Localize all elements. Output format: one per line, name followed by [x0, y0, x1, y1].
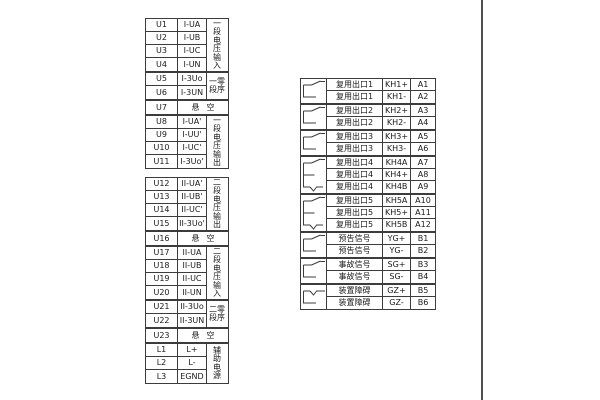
terminal-id-cell: U21 — [146, 301, 178, 313]
table-row: U11I-3Uo' — [146, 155, 207, 168]
group-rows: U12II-UA'U13II-UB'U14II-UC'U15II-3Uo' — [146, 178, 207, 230]
table-row: U1I-UA — [146, 19, 207, 32]
output-name-cell: 复用出口1 — [327, 91, 383, 103]
terminal-code-cell: KH1- — [383, 91, 411, 103]
table-row: 事故信号SG-B4 — [327, 271, 435, 283]
terminal-number-cell: B2 — [411, 245, 435, 257]
contact-group: 事故信号SG+B3事故信号SG-B4 — [300, 258, 436, 284]
terminal-code-cell: YG- — [383, 245, 411, 257]
terminal-id-cell: U13 — [146, 191, 178, 203]
group-rows: 复用出口3KH3+A5复用出口3KH3-A6 — [327, 131, 435, 155]
terminal-id-cell: U14 — [146, 204, 178, 216]
signal-name-cell: EGND — [178, 370, 207, 383]
table-row: U13II-UB' — [146, 191, 207, 204]
terminal-id-cell: U1 — [146, 19, 178, 31]
terminal-number-cell: A11 — [411, 207, 435, 218]
group-label-cell: 一零 段序 — [207, 73, 227, 99]
terminal-group: U5I-3UoU6I-3UN一零 段序 — [145, 72, 229, 100]
signal-output-terminal-table: 复用出口1KH1+A1复用出口1KH1-A2复用出口2KH2+A3复用出口2KH… — [300, 78, 436, 310]
signal-name-cell: I-UU' — [178, 129, 207, 141]
output-name-cell: 复用出口5 — [327, 219, 383, 231]
signal-name-cell: II-UC' — [178, 204, 207, 216]
terminal-number-cell: B3 — [411, 259, 435, 270]
contact-group: 复用出口2KH2+A3复用出口2KH2-A4 — [300, 104, 436, 130]
signal-name-cell: I-3Uo' — [178, 155, 207, 168]
output-name-cell: 事故信号 — [327, 271, 383, 283]
table-row: 复用出口5KH5BA12 — [327, 219, 435, 231]
group-rows: 复用出口2KH2+A3复用出口2KH2-A4 — [327, 105, 435, 129]
output-name-cell: 复用出口3 — [327, 143, 383, 155]
floating-label-cell: 悬空 — [178, 329, 228, 342]
terminal-number-cell: A7 — [411, 157, 435, 168]
terminal-id-cell: U9 — [146, 129, 178, 141]
group-rows: L1L+L2L-L3EGND — [146, 344, 207, 383]
changeover-contact-icon — [301, 195, 327, 231]
terminal-id-cell: U5 — [146, 73, 178, 85]
group-rows: U8I-UA'U9I-UU'U10I-UC'U11I-3Uo' — [146, 116, 207, 168]
output-name-cell: 复用出口3 — [327, 131, 383, 142]
signal-name-cell: II-3Uo — [178, 301, 207, 313]
table-row: 复用出口3KH3+A5 — [327, 131, 435, 143]
terminal-id-cell: L2 — [146, 357, 178, 369]
terminal-id-cell: U23 — [146, 329, 178, 342]
signal-name-cell: I-UN — [178, 58, 207, 71]
group-label-cell: 二 段 电 压 输 出 — [207, 178, 227, 230]
table-row: U23悬空 — [146, 329, 228, 342]
signal-name-cell: II-UA' — [178, 178, 207, 190]
signal-name-cell: II-UB — [178, 260, 207, 272]
terminal-id-cell: U4 — [146, 58, 178, 71]
voltage-terminal-table-2: U12II-UA'U13II-UB'U14II-UC'U15II-3Uo'二 段… — [145, 177, 229, 384]
terminal-id-cell: U2 — [146, 32, 178, 44]
terminal-number-cell: A4 — [411, 117, 435, 129]
terminal-id-cell: U7 — [146, 101, 178, 114]
group-rows: U21II-3UoU22II-3UN — [146, 301, 207, 327]
terminal-code-cell: GZ+ — [383, 285, 411, 296]
table-row: 复用出口3KH3-A6 — [327, 143, 435, 155]
terminal-group: U12II-UA'U13II-UB'U14II-UC'U15II-3Uo'二 段… — [145, 177, 229, 231]
table-row: U18II-UB — [146, 260, 207, 273]
table-row: 装置障碍GZ+B5 — [327, 285, 435, 297]
contact-group: 预告信号YG+B1预告信号YG-B2 — [300, 232, 436, 258]
table-row: 复用出口5KH5AA10 — [327, 195, 435, 207]
terminal-group: U23悬空 — [145, 328, 229, 343]
terminal-id-cell: U22 — [146, 314, 178, 327]
terminal-id-cell: L1 — [146, 344, 178, 356]
terminal-code-cell: KH2- — [383, 117, 411, 129]
signal-name-cell: II-3Uo' — [178, 217, 207, 230]
table-row: L1L+ — [146, 344, 207, 357]
group-label-cell: 二零 段序 — [207, 301, 227, 327]
table-row: 复用出口4KH4AA7 — [327, 157, 435, 169]
table-row: U20II-UN — [146, 286, 207, 299]
terminal-id-cell: U8 — [146, 116, 178, 128]
output-name-cell: 复用出口5 — [327, 195, 383, 206]
output-name-cell: 复用出口4 — [327, 169, 383, 180]
normally-open-contact-icon — [301, 131, 327, 155]
terminal-code-cell: KH3+ — [383, 131, 411, 142]
table-row: U9I-UU' — [146, 129, 207, 142]
terminal-id-cell: U20 — [146, 286, 178, 299]
terminal-number-cell: B6 — [411, 297, 435, 309]
signal-name-cell: II-UN — [178, 286, 207, 299]
group-label-cell: 二 段 电 压 输 入 — [207, 247, 227, 299]
group-rows: 复用出口1KH1+A1复用出口1KH1-A2 — [327, 79, 435, 103]
table-row: U10I-UC' — [146, 142, 207, 155]
signal-name-cell: II-UB' — [178, 191, 207, 203]
signal-name-cell: I-UC — [178, 45, 207, 57]
group-rows: U17II-UAU18II-UBU19II-UCU20II-UN — [146, 247, 207, 299]
terminal-id-cell: U6 — [146, 86, 178, 99]
output-name-cell: 复用出口2 — [327, 105, 383, 116]
signal-name-cell: II-3UN — [178, 314, 207, 327]
group-rows: 事故信号SG+B3事故信号SG-B4 — [327, 259, 435, 283]
table-row: U15II-3Uo' — [146, 217, 207, 230]
table-row: U5I-3Uo — [146, 73, 207, 86]
output-name-cell: 事故信号 — [327, 259, 383, 270]
terminal-number-cell: A1 — [411, 79, 435, 90]
table-row: U19II-UC — [146, 273, 207, 286]
group-rows: U1I-UAU2I-UBU3I-UCU4I-UN — [146, 19, 207, 71]
terminal-number-cell: B4 — [411, 271, 435, 283]
group-rows: 复用出口5KH5AA10复用出口5KH5+A11复用出口5KH5BA12 — [327, 195, 435, 231]
output-name-cell: 复用出口4 — [327, 181, 383, 193]
terminal-id-cell: U18 — [146, 260, 178, 272]
signal-name-cell: II-UC — [178, 273, 207, 285]
table-row: U21II-3Uo — [146, 301, 207, 314]
terminal-number-cell: A12 — [411, 219, 435, 231]
group-label-cell: 辅 助 电 源 — [207, 344, 227, 383]
terminal-group: L1L+L2L-L3EGND辅 助 电 源 — [145, 343, 229, 384]
terminal-number-cell: B1 — [411, 233, 435, 244]
table-row: U6I-3UN — [146, 86, 207, 99]
table-row: 复用出口5KH5+A11 — [327, 207, 435, 219]
voltage-terminal-table-1: U1I-UAU2I-UBU3I-UCU4I-UN一 段 电 压 输 入U5I-3… — [145, 18, 229, 169]
terminal-group: U21II-3UoU22II-3UN二零 段序 — [145, 300, 229, 328]
table-row: 预告信号YG+B1 — [327, 233, 435, 245]
terminal-group: U17II-UAU18II-UBU19II-UCU20II-UN二 段 电 压 … — [145, 246, 229, 300]
signal-name-cell: L+ — [178, 344, 207, 356]
table-row: U2I-UB — [146, 32, 207, 45]
normally-open-contact-icon — [301, 233, 327, 257]
table-row: U14II-UC' — [146, 204, 207, 217]
terminal-number-cell: A10 — [411, 195, 435, 206]
table-row: U8I-UA' — [146, 116, 207, 129]
terminal-id-cell: U15 — [146, 217, 178, 230]
terminal-number-cell: A9 — [411, 181, 435, 193]
terminal-group: U7悬空 — [145, 100, 229, 115]
table-row: L3EGND — [146, 370, 207, 383]
terminal-code-cell: KH1+ — [383, 79, 411, 90]
terminal-code-cell: KH5+ — [383, 207, 411, 218]
normally-closed-contact-icon — [301, 285, 327, 309]
signal-name-cell: I-3Uo — [178, 73, 207, 85]
terminal-id-cell: U17 — [146, 247, 178, 259]
table-row: 复用出口2KH2-A4 — [327, 117, 435, 129]
terminal-id-cell: U10 — [146, 142, 178, 154]
changeover-contact-icon — [301, 157, 327, 193]
group-label-cell: 一 段 电 压 输 入 — [207, 19, 227, 71]
table-row: 装置障碍GZ-B6 — [327, 297, 435, 309]
output-name-cell: 预告信号 — [327, 245, 383, 257]
contact-group: 复用出口4KH4AA7复用出口4KH4+A8复用出口4KH4BA9 — [300, 156, 436, 194]
table-row: U4I-UN — [146, 58, 207, 71]
terminal-code-cell: SG- — [383, 271, 411, 283]
contact-group: 装置障碍GZ+B5装置障碍GZ-B6 — [300, 284, 436, 310]
terminal-number-cell: A5 — [411, 131, 435, 142]
table-row: 复用出口1KH1+A1 — [327, 79, 435, 91]
terminal-id-cell: U11 — [146, 155, 178, 168]
floating-label-cell: 悬空 — [178, 232, 228, 245]
terminal-code-cell: KH4B — [383, 181, 411, 193]
terminal-code-cell: YG+ — [383, 233, 411, 244]
table-row: L2L- — [146, 357, 207, 370]
output-name-cell: 复用出口4 — [327, 157, 383, 168]
signal-name-cell: I-UB — [178, 32, 207, 44]
output-name-cell: 装置障碍 — [327, 297, 383, 309]
table-row: U3I-UC — [146, 45, 207, 58]
terminal-number-cell: A8 — [411, 169, 435, 180]
table-row: 复用出口2KH2+A3 — [327, 105, 435, 117]
terminal-code-cell: KH4+ — [383, 169, 411, 180]
terminal-number-cell: B5 — [411, 285, 435, 296]
signal-name-cell: I-UA' — [178, 116, 207, 128]
normally-open-contact-icon — [301, 79, 327, 103]
signal-name-cell: II-UA — [178, 247, 207, 259]
signal-name-cell: L- — [178, 357, 207, 369]
table-row: U12II-UA' — [146, 178, 207, 191]
page-edge-rule — [481, 0, 483, 400]
table-row: U17II-UA — [146, 247, 207, 260]
group-rows: 预告信号YG+B1预告信号YG-B2 — [327, 233, 435, 257]
terminal-number-cell: A6 — [411, 143, 435, 155]
output-name-cell: 复用出口5 — [327, 207, 383, 218]
group-rows: 复用出口4KH4AA7复用出口4KH4+A8复用出口4KH4BA9 — [327, 157, 435, 193]
terminal-id-cell: L3 — [146, 370, 178, 383]
terminal-code-cell: KH4A — [383, 157, 411, 168]
table-row: 复用出口4KH4+A8 — [327, 169, 435, 181]
normally-open-contact-icon — [301, 259, 327, 283]
group-label-cell: 一 段 电 压 输 出 — [207, 116, 227, 168]
terminal-id-cell: U12 — [146, 178, 178, 190]
terminal-code-cell: KH3- — [383, 143, 411, 155]
floating-label-cell: 悬空 — [178, 101, 228, 114]
terminal-wiring-diagram: U1I-UAU2I-UBU3I-UCU4I-UN一 段 电 压 输 入U5I-3… — [0, 0, 600, 400]
output-name-cell: 预告信号 — [327, 233, 383, 244]
signal-name-cell: I-3UN — [178, 86, 207, 99]
terminal-id-cell: U3 — [146, 45, 178, 57]
group-rows: 装置障碍GZ+B5装置障碍GZ-B6 — [327, 285, 435, 309]
terminal-code-cell: GZ- — [383, 297, 411, 309]
signal-name-cell: I-UA — [178, 19, 207, 31]
table-row: U7悬空 — [146, 101, 228, 114]
terminal-number-cell: A2 — [411, 91, 435, 103]
terminal-code-cell: KH2+ — [383, 105, 411, 116]
terminal-number-cell: A3 — [411, 105, 435, 116]
signal-name-cell: I-UC' — [178, 142, 207, 154]
table-row: 复用出口1KH1-A2 — [327, 91, 435, 103]
group-rows: U5I-3UoU6I-3UN — [146, 73, 207, 99]
terminal-group: U8I-UA'U9I-UU'U10I-UC'U11I-3Uo'一 段 电 压 输… — [145, 115, 229, 169]
output-name-cell: 复用出口2 — [327, 117, 383, 129]
output-name-cell: 装置障碍 — [327, 285, 383, 296]
terminal-group: U1I-UAU2I-UBU3I-UCU4I-UN一 段 电 压 输 入 — [145, 18, 229, 72]
contact-group: 复用出口5KH5AA10复用出口5KH5+A11复用出口5KH5BA12 — [300, 194, 436, 232]
terminal-id-cell: U19 — [146, 273, 178, 285]
table-row: U16悬空 — [146, 232, 228, 245]
table-row: 事故信号SG+B3 — [327, 259, 435, 271]
terminal-group: U16悬空 — [145, 231, 229, 246]
terminal-code-cell: SG+ — [383, 259, 411, 270]
contact-group: 复用出口1KH1+A1复用出口1KH1-A2 — [300, 78, 436, 104]
terminal-id-cell: U16 — [146, 232, 178, 245]
contact-group: 复用出口3KH3+A5复用出口3KH3-A6 — [300, 130, 436, 156]
normally-open-contact-icon — [301, 105, 327, 129]
terminal-code-cell: KH5B — [383, 219, 411, 231]
output-name-cell: 复用出口1 — [327, 79, 383, 90]
table-row: 复用出口4KH4BA9 — [327, 181, 435, 193]
table-row: 预告信号YG-B2 — [327, 245, 435, 257]
table-row: U22II-3UN — [146, 314, 207, 327]
terminal-code-cell: KH5A — [383, 195, 411, 206]
